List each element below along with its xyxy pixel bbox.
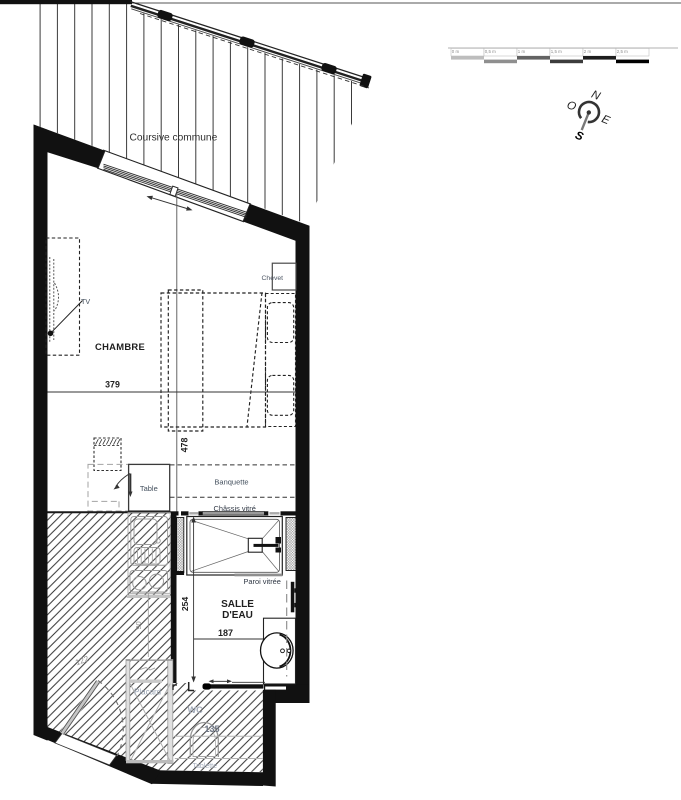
svg-text:2,5 m: 2,5 m [617,49,628,54]
svg-text:2 m: 2 m [584,49,592,54]
svg-text:90: 90 [134,621,143,629]
svg-text:Chevet: Chevet [262,275,284,282]
svg-text:Paroi vitrée: Paroi vitrée [244,577,281,586]
svg-text:1 m: 1 m [518,49,526,54]
svg-text:Table: Table [140,484,158,493]
svg-text:254: 254 [180,597,190,612]
svg-text:379: 379 [105,379,120,389]
svg-text:SALLE: SALLE [221,599,254,610]
svg-text:0 m: 0 m [452,49,460,54]
svg-text:187: 187 [218,628,233,638]
svg-text:TV: TV [81,297,90,306]
svg-text:Coursive commune: Coursive commune [130,133,218,144]
svg-text:1,5 m: 1,5 m [551,49,562,54]
svg-text:CHAMBRE: CHAMBRE [95,341,145,352]
svg-text:135: 135 [204,724,219,734]
svg-text:WC: WC [188,705,204,715]
svg-text:Banquette: Banquette [214,477,248,486]
svg-text:478: 478 [180,438,190,453]
svg-text:Châssis vitré: Châssis vitré [214,504,256,513]
svg-text:0,5 m: 0,5 m [485,49,496,54]
svg-text:Placard: Placard [134,687,161,696]
svg-text:D'EAU: D'EAU [222,610,253,621]
svg-text:Tablette: Tablette [193,763,218,770]
